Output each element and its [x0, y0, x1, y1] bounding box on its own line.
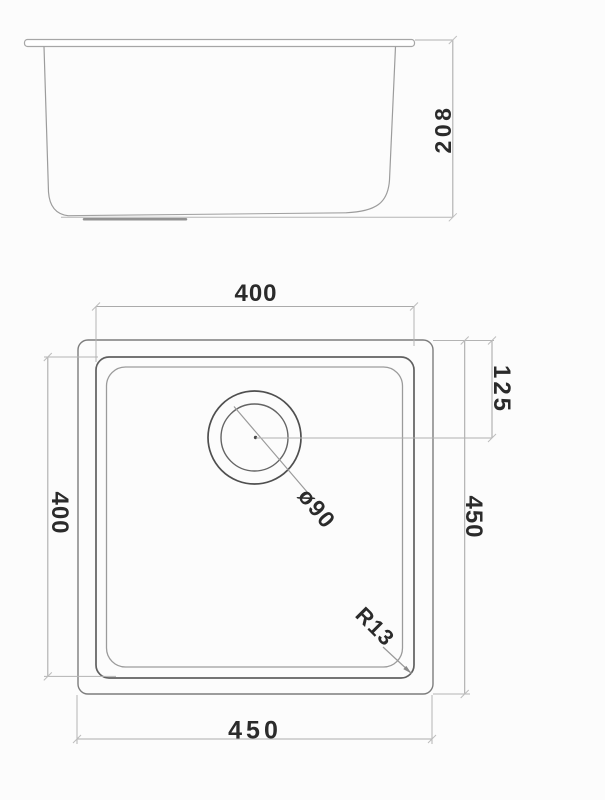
- svg-text:450: 450: [460, 495, 487, 538]
- svg-text:400: 400: [234, 280, 277, 307]
- svg-text:125: 125: [488, 365, 515, 414]
- svg-text:208: 208: [430, 105, 456, 154]
- svg-text:450: 450: [228, 717, 282, 745]
- svg-text:400: 400: [46, 491, 73, 534]
